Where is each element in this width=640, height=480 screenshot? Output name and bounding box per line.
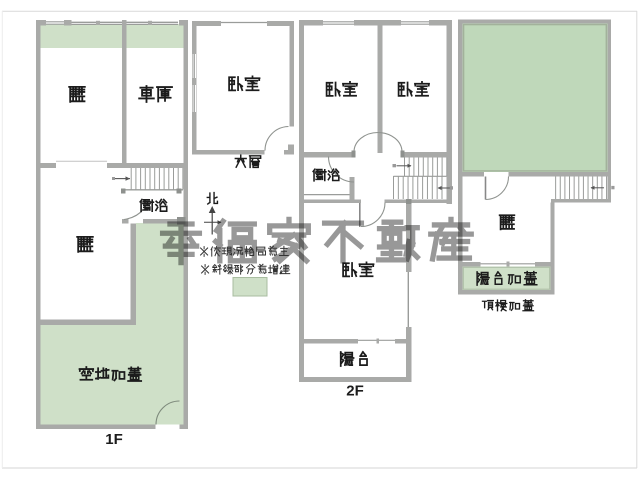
svg-text:2F: 2F (346, 383, 364, 400)
svg-text:1F: 1F (105, 431, 123, 448)
